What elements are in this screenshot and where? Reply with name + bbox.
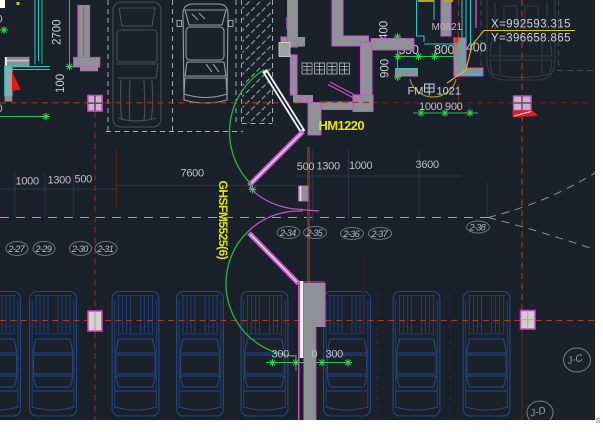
svg-text:300: 300 [326,349,344,361]
svg-text:500: 500 [75,174,93,186]
svg-text:2700: 2700 [52,19,64,45]
svg-text:400: 400 [466,41,487,55]
svg-text:2-34: 2-34 [279,228,296,238]
svg-text:1000: 1000 [349,160,372,172]
svg-text:2-37: 2-37 [371,229,389,239]
svg-text:X=992593.315: X=992593.315 [491,19,571,31]
svg-text:2-29: 2-29 [35,244,52,254]
svg-text:500: 500 [297,161,315,173]
svg-text:400: 400 [379,21,391,40]
svg-text:HM1220: HM1220 [319,118,365,133]
svg-text:2-30: 2-30 [71,244,88,254]
svg-text:300: 300 [272,349,290,361]
svg-text:900: 900 [380,59,392,78]
svg-text:2-35: 2-35 [306,228,324,238]
svg-text:FM: FM [408,86,424,98]
svg-text:M0821: M0821 [432,22,463,33]
svg-text:1021: 1021 [437,86,461,98]
svg-text:0: 0 [0,14,3,26]
svg-text:0: 0 [312,349,318,361]
svg-text:1000 900: 1000 900 [419,101,463,113]
svg-text:S: S [596,418,601,425]
svg-text:3600: 3600 [416,159,439,171]
svg-text:2-31: 2-31 [97,244,114,254]
svg-text:2-27: 2-27 [8,244,26,254]
svg-text:1300: 1300 [48,175,71,187]
svg-text:100: 100 [55,74,67,93]
svg-text:2-36: 2-36 [343,229,360,239]
svg-text:2-38: 2-38 [469,223,486,233]
svg-text:1300: 1300 [317,161,340,173]
svg-text:GHSFM5525(6): GHSFM5525(6) [216,181,230,260]
svg-text:7600: 7600 [181,168,204,180]
svg-text:800: 800 [434,43,455,57]
svg-text:Y=396658.865: Y=396658.865 [491,33,571,45]
svg-text:1000: 1000 [16,176,39,188]
svg-text:0: 0 [0,103,3,115]
